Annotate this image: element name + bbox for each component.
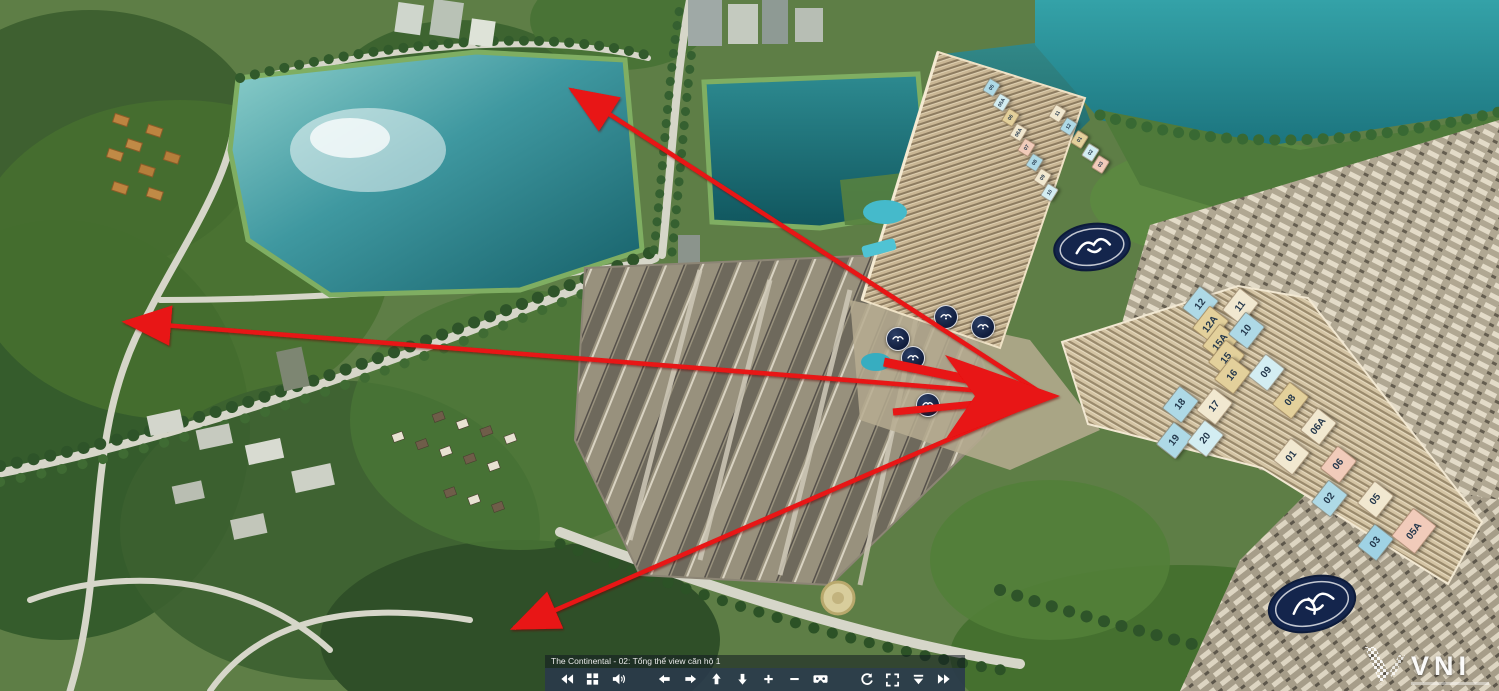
pan-right-icon [683, 672, 698, 687]
eagle-hotspot-icon [939, 310, 953, 324]
previous-scene-icon [559, 672, 574, 687]
autorotate-icon [859, 672, 874, 687]
pan-left-icon [657, 672, 672, 687]
scene-title: The Continental - 02: Tổng thể view căn … [551, 656, 720, 666]
vr-mode-icon [813, 672, 828, 687]
viewer-toolbar [545, 668, 965, 691]
audio-toggle-button[interactable] [607, 670, 629, 690]
eagle-hotspot-icon [976, 320, 990, 334]
next-scene-icon [937, 672, 952, 687]
thumbnails-icon [585, 672, 600, 687]
toolbar-group-2 [855, 670, 955, 690]
thumbnails-button[interactable] [581, 670, 603, 690]
hide-toolbar-icon [911, 672, 926, 687]
panorama-hotspot-5[interactable] [886, 327, 910, 351]
panorama-hotspot-2[interactable] [916, 393, 940, 417]
pan-right-button[interactable] [679, 670, 701, 690]
fullscreen-button[interactable] [881, 670, 903, 690]
zoom-in-button[interactable] [757, 670, 779, 690]
next-scene-button[interactable] [933, 670, 955, 690]
pan-down-icon [735, 672, 750, 687]
panorama-hotspot-4[interactable] [934, 305, 958, 329]
toolbar-group-1 [653, 670, 831, 690]
panorama-viewport[interactable]: 0505A0606A070809101112010203 1212A15A151… [0, 0, 1499, 691]
zoom-in-icon [761, 672, 776, 687]
vr-mode-button[interactable] [809, 670, 831, 690]
fullscreen-icon [885, 672, 900, 687]
autorotate-button[interactable] [855, 670, 877, 690]
hide-toolbar-button[interactable] [907, 670, 929, 690]
panorama-hotspot-1[interactable] [901, 346, 925, 370]
pan-down-button[interactable] [731, 670, 753, 690]
panorama-hotspot-3[interactable] [971, 315, 995, 339]
zoom-out-button[interactable] [783, 670, 805, 690]
scene-title-bar: The Continental - 02: Tổng thể view căn … [545, 655, 965, 668]
eagle-hotspot-icon [921, 398, 935, 412]
pan-up-button[interactable] [705, 670, 727, 690]
audio-toggle-icon [611, 672, 626, 687]
eagle-hotspot-icon [891, 332, 905, 346]
toolbar-group-0 [555, 670, 629, 690]
pan-left-button[interactable] [653, 670, 675, 690]
eagle-medallions [0, 0, 1499, 691]
eagle-hotspot-icon [906, 351, 920, 365]
zoom-out-icon [787, 672, 802, 687]
previous-scene-button[interactable] [555, 670, 577, 690]
pan-up-icon [709, 672, 724, 687]
